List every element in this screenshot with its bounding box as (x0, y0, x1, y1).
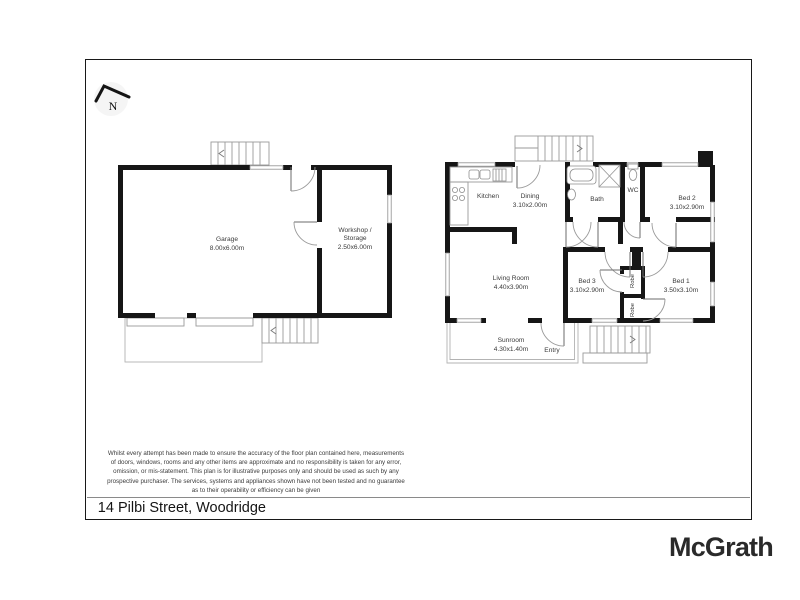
garage-door-panel (127, 318, 184, 326)
disclaimer-line: Whilst every attempt has been made to en… (90, 449, 422, 458)
address-bar: 14 Pilbi Street, Woodridge (87, 497, 750, 518)
bed3-label: Bed 3 (578, 278, 596, 285)
floorplan-page: N (0, 0, 800, 600)
north-label: N (109, 99, 118, 113)
garage-deck (125, 318, 262, 362)
dining-label: Dining (521, 193, 540, 200)
garage-top-stairs (211, 142, 269, 165)
toilet-icon (628, 164, 638, 181)
garage-bottom-stairs (262, 318, 318, 343)
bath-label: Bath (590, 196, 604, 203)
sink-icon (480, 170, 490, 179)
dining-dims: 3.10x2.00m (513, 202, 548, 209)
workshop-label: Workshop / (338, 227, 371, 234)
brand-logo: McGrath (669, 532, 799, 563)
north-arrow-icon: N (94, 82, 129, 116)
property-address: 14 Pilbi Street, Woodridge (98, 500, 266, 516)
house-bottom-stairs (583, 326, 650, 363)
disclaimer-line: omission, or mis-statement. This plan is… (90, 467, 422, 476)
robe-lower-label: Robe (630, 302, 636, 317)
disclaimer-text: Whilst every attempt has been made to en… (90, 449, 422, 495)
garage-label: Garage (216, 236, 238, 243)
basin-icon (568, 189, 576, 200)
garage-dims: 8.00x6.00m (210, 245, 245, 252)
disclaimer-line: as to their operability or efficiency ca… (90, 486, 422, 495)
garage-doors (291, 167, 317, 245)
bed1-label: Bed 1 (672, 278, 690, 285)
bathroom-fixtures (567, 164, 638, 200)
entry-label: Entry (544, 347, 560, 354)
workshop-dims: 2.50x6.00m (338, 244, 373, 251)
wc-label: WC (628, 187, 639, 194)
shower-icon (599, 165, 620, 187)
bed2-dims: 3.10x2.90m (670, 204, 705, 211)
robe-upper-label: Robe (630, 273, 636, 288)
workshop-label-2: Storage (343, 235, 366, 242)
garage-door-panel (196, 318, 253, 326)
sunroom-dims: 4.30x1.40m (494, 346, 529, 353)
dishwasher-icon (493, 169, 506, 181)
house-top-stairs (515, 136, 593, 161)
living-dims: 4.40x3.90m (494, 284, 529, 291)
bed2-label: Bed 2 (678, 195, 696, 202)
living-label: Living Room (493, 275, 530, 282)
disclaimer-line: of doors, windows, rooms and any other i… (90, 458, 422, 467)
sunroom-label: Sunroom (498, 337, 525, 344)
garage-building: Garage 8.00x6.00m Workshop / Storage 2.5… (118, 142, 392, 362)
stove-icon (452, 187, 464, 200)
bed1-dims: 3.50x3.10m (664, 287, 699, 294)
bed3-dims: 3.10x2.90m (570, 287, 605, 294)
kitchen-label: Kitchen (477, 193, 499, 200)
disclaimer-line: prospective purchaser. The services, sys… (90, 477, 422, 486)
house-plan: Kitchen Dining 3.10x2.00m Bath WC Bed 2 … (445, 136, 715, 363)
sink-icon (469, 170, 479, 179)
